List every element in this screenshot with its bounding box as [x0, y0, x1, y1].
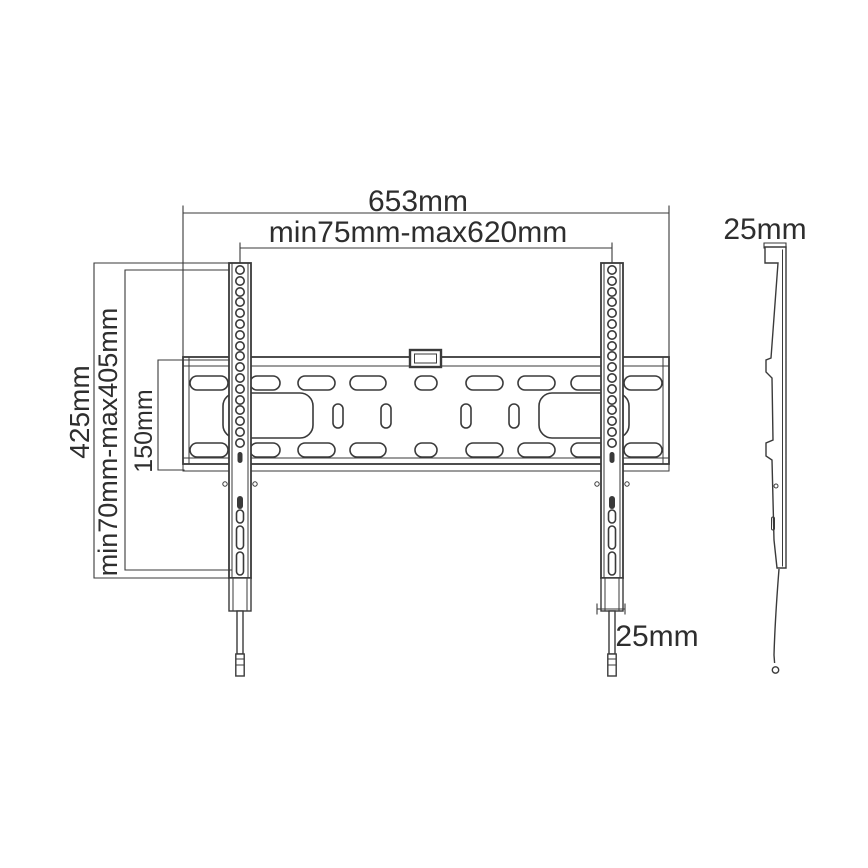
dim-overall-width: 653mm [183, 185, 669, 357]
mount-dimension-drawing: 653mm min75mm-max620mm 425mm min70mm-max… [0, 0, 868, 868]
label-side-depth: 25mm [723, 213, 806, 246]
wall-plate [183, 350, 669, 471]
dim-mount-width-range: min75mm-max620mm [240, 216, 612, 262]
label-overall-height: 425mm [64, 365, 95, 458]
label-bracket-width: 25mm [615, 620, 698, 653]
side-view [765, 247, 786, 673]
label-plate-height: 150mm [130, 389, 158, 472]
side-strap-loop [772, 667, 778, 673]
front-view [183, 263, 669, 676]
wall-plate-lower-flange [183, 464, 669, 471]
level-clip [410, 350, 441, 367]
wall-plate-body [183, 357, 669, 464]
right-vertical-rail [595, 263, 629, 676]
label-mount-width-range: min75mm-max620mm [269, 216, 567, 249]
dim-side-depth: 25mm [723, 213, 806, 248]
side-pull-strap [774, 569, 779, 663]
mount-dimension-drawing-page: 653mm min75mm-max620mm 425mm min70mm-max… [0, 0, 868, 868]
left-vertical-rail [223, 263, 257, 676]
label-mount-height-range: min70mm-max405mm [93, 308, 123, 577]
label-overall-width: 653mm [368, 185, 468, 218]
